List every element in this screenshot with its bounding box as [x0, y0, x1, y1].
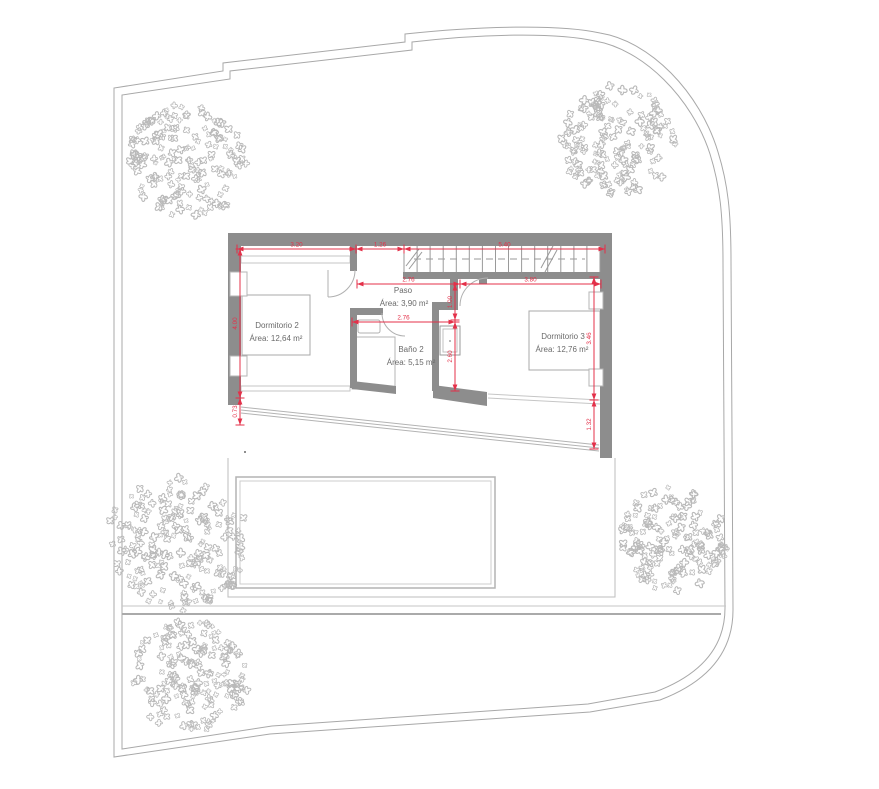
- floor-plan-drawing: 3.201.265.402.763.802.764.000.731.002.60…: [0, 0, 879, 789]
- leaf-glyph: [186, 574, 191, 579]
- leaf-glyph: [618, 538, 630, 550]
- leaf-glyph: [201, 209, 208, 216]
- leaf-glyph: [689, 521, 698, 529]
- glass-wall-dorm2: [241, 386, 350, 391]
- room-label-dorm3-name: Dormitorio 3: [541, 332, 585, 341]
- leaf-glyph: [632, 512, 639, 519]
- leaf-glyph: [173, 693, 180, 700]
- leaf-glyph: [626, 126, 636, 136]
- leaf-glyph: [638, 93, 644, 99]
- window-left-1: [230, 272, 247, 296]
- leaf-glyph: [224, 693, 230, 699]
- leaf-glyph: [149, 590, 158, 599]
- leaf-glyph: [651, 514, 658, 521]
- leaf-glyph: [640, 551, 649, 560]
- leaf-glyph: [175, 176, 182, 183]
- dimension-label: 3.80: [524, 277, 537, 284]
- leaf-glyph: [177, 653, 186, 662]
- leaf-glyph: [202, 680, 210, 688]
- leaf-glyph: [183, 517, 190, 524]
- leaf-glyph: [204, 543, 213, 552]
- stair-break-slash-2: [545, 250, 557, 272]
- leaf-glyph: [182, 126, 191, 135]
- leaf-glyph: [190, 132, 200, 142]
- leaf-glyph: [132, 647, 144, 659]
- leaf-glyph: [178, 561, 187, 570]
- leaf-glyph: [666, 485, 671, 490]
- tree-1: [125, 101, 251, 221]
- leaf-glyph: [652, 585, 658, 591]
- dimension-label: 2.76: [397, 315, 410, 322]
- leaf-glyph: [705, 567, 713, 575]
- leaf-glyph: [180, 607, 187, 613]
- leaf-glyph: [132, 576, 138, 582]
- window-left-2: [230, 356, 247, 376]
- leaf-glyph: [155, 521, 166, 532]
- room-label-paso-name: Paso: [394, 286, 413, 295]
- leaf-glyph: [159, 195, 169, 205]
- wall-bath-right: [432, 303, 439, 391]
- leaf-glyph: [604, 156, 611, 163]
- leaf-glyph: [179, 579, 189, 589]
- tree-3: [105, 473, 249, 614]
- leaf-glyph: [238, 672, 245, 679]
- leaf-glyph: [158, 599, 163, 605]
- leaf-glyph: [632, 502, 643, 514]
- leaf-glyph: [646, 542, 655, 551]
- leaf-glyph: [126, 573, 132, 579]
- leaf-glyph: [222, 143, 229, 150]
- leaf-glyph: [178, 689, 189, 700]
- leaf-glyph: [135, 661, 145, 671]
- leaf-glyph: [223, 123, 235, 135]
- leaf-glyph: [216, 708, 223, 715]
- leaf-glyph: [610, 161, 619, 170]
- dimension-label: 2.76: [402, 277, 415, 284]
- leaf-glyph: [207, 197, 215, 205]
- leaf-glyph: [177, 503, 183, 509]
- leaf-glyph: [158, 144, 165, 151]
- leaf-glyph: [128, 493, 135, 500]
- dimension-label: 5.40: [498, 242, 511, 249]
- leaf-glyph: [198, 588, 207, 597]
- leaf-glyph: [611, 100, 618, 107]
- leaf-glyph: [190, 145, 197, 152]
- dimension-label: 3.20: [290, 242, 303, 249]
- dimension-arrowhead: [453, 314, 458, 321]
- leaf-glyph: [126, 523, 134, 531]
- leaf-glyph: [668, 127, 676, 135]
- leaf-glyph: [562, 117, 574, 129]
- leaf-glyph: [660, 581, 669, 590]
- dimension-label: 1.26: [374, 242, 387, 249]
- leaf-glyph: [177, 629, 186, 638]
- leaf-glyph: [237, 144, 247, 154]
- leaf-glyph: [198, 207, 204, 213]
- leaf-glyph: [222, 185, 229, 192]
- leaf-glyph: [146, 712, 155, 721]
- leaf-glyph: [111, 506, 119, 514]
- leaf-glyph: [210, 587, 217, 594]
- leaf-glyph: [219, 499, 227, 507]
- leaf-glyph: [157, 652, 166, 661]
- leaf-glyph: [688, 568, 696, 576]
- leaf-glyph: [194, 157, 203, 166]
- leaf-glyph: [638, 143, 645, 150]
- leaf-glyph: [163, 107, 170, 114]
- leaf-glyph: [185, 204, 192, 211]
- leaf-glyph: [235, 161, 243, 169]
- leaf-glyph: [192, 597, 200, 605]
- tree-2: [556, 81, 680, 198]
- room-label-dorm2-name: Dormitorio 2: [255, 321, 299, 330]
- leaf-glyph: [157, 504, 170, 517]
- leaf-glyph: [218, 645, 225, 652]
- leaf-glyph: [690, 541, 697, 548]
- leaf-glyph: [157, 497, 165, 505]
- leaf-glyph: [117, 521, 126, 530]
- leaf-glyph: [178, 592, 190, 604]
- leaf-glyph: [568, 165, 575, 172]
- railing-line-3: [241, 413, 599, 451]
- wall-top: [228, 233, 612, 246]
- door-arc-dorm2: [328, 270, 355, 297]
- leaf-glyph: [221, 672, 227, 678]
- railing-line-2: [241, 410, 599, 448]
- leaf-glyph: [213, 692, 219, 698]
- leaf-glyph: [142, 152, 150, 160]
- leaf-glyph: [197, 620, 203, 626]
- leaf-glyph: [626, 108, 635, 117]
- leaf-glyph: [139, 494, 147, 502]
- leaf-glyph: [116, 534, 127, 545]
- leaf-glyph: [160, 109, 168, 117]
- leaf-glyph: [186, 190, 194, 198]
- room-label-dorm2-area: Área: 12,64 m²: [250, 334, 303, 343]
- room-label-bath-area: Área: 5,15 m²: [387, 358, 436, 367]
- leaf-glyph: [133, 511, 140, 518]
- room-label-paso-area: Área: 3,90 m²: [380, 299, 429, 308]
- dimension-label: 1.32: [586, 418, 593, 431]
- window-right-2: [589, 369, 603, 386]
- leaf-glyph: [175, 547, 187, 559]
- leaf-glyph: [187, 496, 197, 506]
- leaf-glyph: [673, 586, 682, 595]
- room-label-dorm3-area: Área: 12,76 m²: [536, 345, 589, 354]
- leaf-glyph: [651, 578, 658, 585]
- leaf-glyph: [191, 490, 203, 502]
- leaf-glyph: [212, 143, 219, 150]
- leaf-glyph: [715, 532, 726, 543]
- leaf-glyph: [211, 645, 218, 652]
- leaf-glyph: [202, 483, 210, 491]
- leaf-glyph: [628, 84, 640, 96]
- pool-outline-inner: [240, 481, 491, 584]
- leaf-glyph: [171, 112, 179, 120]
- leaf-glyph: [665, 545, 674, 554]
- dimension-label: 3.46: [586, 332, 593, 345]
- leaf-glyph: [186, 621, 196, 631]
- leaf-glyph: [181, 478, 189, 486]
- leaf-glyph: [619, 118, 627, 126]
- leaf-glyph: [230, 703, 239, 712]
- leaf-glyph: [634, 572, 641, 579]
- wardrobe-dorm2: [241, 256, 350, 263]
- dimension-arrowhead: [460, 282, 467, 287]
- leaf-glyph: [216, 672, 222, 678]
- leaf-glyph: [563, 155, 574, 166]
- leaf-glyph: [160, 587, 167, 594]
- leaf-glyph: [624, 188, 632, 196]
- leaf-glyph: [602, 121, 612, 131]
- wall-stairs-bottom: [403, 272, 612, 279]
- leaf-glyph: [157, 700, 164, 707]
- leaf-glyph: [232, 130, 242, 140]
- stair-start-slash-2: [409, 252, 422, 269]
- trees-layer: [105, 81, 730, 733]
- leaf-glyph: [646, 92, 653, 99]
- terrace-outline: [228, 458, 615, 597]
- leaf-glyph: [217, 191, 224, 198]
- leaf-glyph: [155, 710, 164, 719]
- dimension-arrowhead: [357, 282, 364, 287]
- dimension-label: 4.00: [232, 317, 239, 330]
- leaf-glyph: [566, 168, 574, 176]
- window-right-1: [589, 292, 603, 309]
- leaf-glyph: [647, 486, 660, 499]
- leaf-glyph: [202, 195, 210, 203]
- dimension-label: 0.73: [232, 405, 239, 418]
- leaf-glyph: [573, 159, 583, 169]
- dimension-label: 2.60: [447, 350, 454, 363]
- leaf-glyph: [139, 135, 151, 147]
- leaf-glyph: [697, 509, 704, 516]
- leaf-glyph: [648, 550, 658, 560]
- leaf-glyph: [112, 514, 118, 520]
- leaf-glyph: [201, 125, 209, 133]
- leaf-glyph: [108, 539, 117, 548]
- leaf-glyph: [166, 479, 173, 486]
- leaf-glyph: [134, 483, 145, 494]
- dimension-arrowhead: [404, 247, 411, 252]
- leaf-glyph: [203, 668, 215, 680]
- leaf-glyph: [638, 527, 647, 536]
- leaf-glyph: [194, 723, 202, 731]
- leaf-glyph: [175, 205, 185, 214]
- leaf-glyph: [138, 191, 149, 202]
- leaf-glyph: [124, 558, 131, 566]
- leaf-glyph: [140, 514, 149, 523]
- leaf-glyph: [174, 712, 182, 720]
- leaf-glyph: [160, 693, 172, 705]
- leaf-glyph: [145, 598, 151, 604]
- leaf-glyph: [155, 718, 164, 727]
- leaf-glyph: [170, 101, 179, 110]
- leaf-glyph: [175, 489, 187, 501]
- wall-bath-top: [350, 308, 383, 315]
- leaf-glyph: [215, 629, 222, 636]
- leaf-glyph: [196, 194, 203, 201]
- leaf-glyph: [175, 199, 184, 208]
- leaf-glyph: [647, 167, 655, 175]
- leaf-glyph: [179, 104, 185, 110]
- leaf-glyph: [136, 538, 145, 547]
- leaf-glyph: [565, 109, 575, 119]
- leaf-glyph: [665, 519, 673, 527]
- railing-line-1: [241, 407, 599, 445]
- leaf-glyph: [215, 521, 223, 529]
- shower-column-dot: [449, 340, 451, 342]
- leaf-glyph: [218, 165, 224, 171]
- leaf-glyph: [166, 486, 173, 493]
- leaf-glyph: [169, 211, 175, 218]
- dimension-1.32: 1.32: [586, 400, 599, 449]
- leaf-glyph: [632, 499, 640, 507]
- leaf-glyph: [137, 588, 145, 596]
- leaf-glyph: [207, 650, 217, 660]
- survey-dot: [244, 451, 246, 453]
- leaf-glyph: [616, 84, 628, 96]
- leaf-glyph: [639, 490, 649, 500]
- leaf-glyph: [649, 157, 657, 165]
- leaf-glyph: [199, 629, 208, 638]
- leaf-glyph: [166, 180, 176, 190]
- wall-bath-left: [350, 308, 357, 388]
- leaf-glyph: [204, 140, 214, 150]
- leaf-glyph: [605, 81, 614, 90]
- dimension-arrowhead: [453, 322, 458, 329]
- leaf-glyph: [148, 499, 157, 508]
- leaf-glyph: [202, 704, 208, 710]
- leaf-glyph: [127, 580, 137, 590]
- leaf-glyph: [156, 570, 166, 580]
- tree-5: [617, 485, 731, 595]
- leaf-glyph: [209, 623, 215, 629]
- wall-bottom-slant-2: [433, 385, 487, 406]
- leaf-glyph: [651, 170, 661, 180]
- leaf-glyph: [152, 631, 160, 639]
- leaf-glyph: [241, 159, 250, 168]
- leaf-glyph: [668, 549, 675, 556]
- railing: [241, 407, 599, 451]
- dimension-arrowhead: [592, 394, 597, 401]
- leaf-glyph: [695, 579, 704, 588]
- leaf-glyph: [198, 155, 209, 166]
- dimension-arrowhead: [398, 247, 405, 252]
- leaf-glyph: [203, 567, 211, 575]
- dimension-arrowhead: [238, 419, 243, 426]
- leaf-glyph: [139, 184, 144, 189]
- leaf-glyph: [185, 505, 196, 516]
- wall-right: [600, 233, 612, 458]
- leaf-glyph: [149, 532, 158, 541]
- leaf-glyph: [241, 662, 248, 669]
- plan-canvas: 3.201.265.402.763.802.764.000.731.002.60…: [0, 0, 879, 789]
- leaf-glyph: [166, 490, 174, 498]
- pool-outline-outer: [236, 477, 495, 588]
- room-label-bath-name: Baño 2: [398, 345, 424, 354]
- leaf-glyph: [190, 209, 202, 221]
- tree-4: [129, 617, 251, 733]
- dimension-label: 1.00: [447, 295, 454, 308]
- leaf-glyph: [158, 668, 165, 675]
